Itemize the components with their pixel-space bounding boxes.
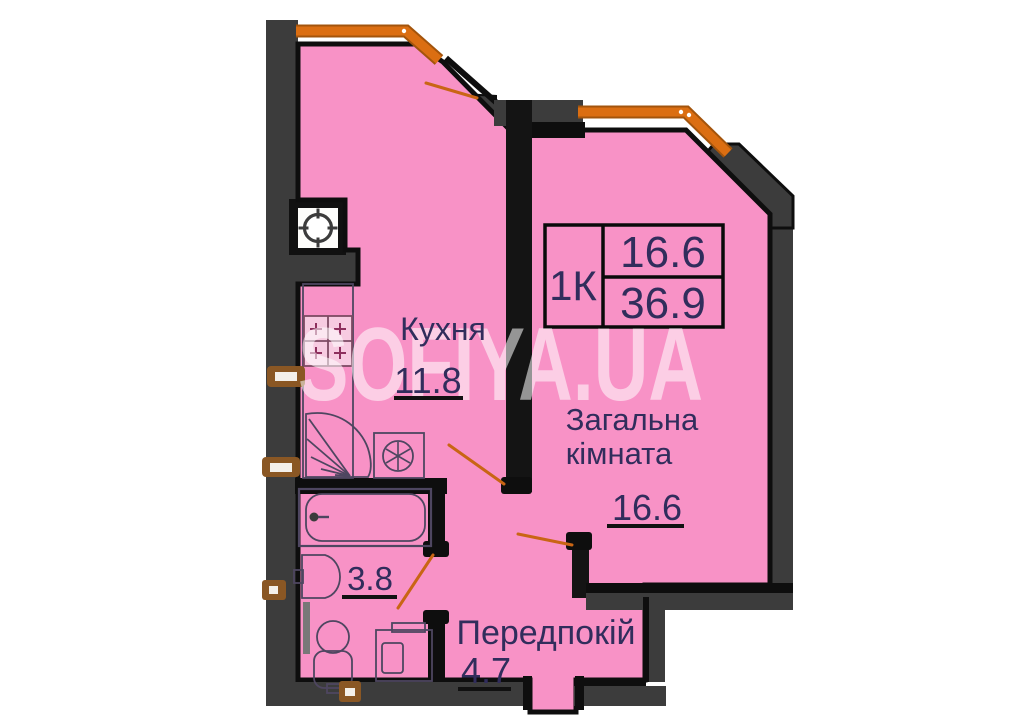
bathroom-area-label: 3.8	[347, 560, 393, 597]
bathroom-door-jamb-upper	[423, 541, 449, 557]
living-name-label-line1: Загальна	[566, 402, 699, 437]
valve-slot	[275, 372, 297, 381]
window-joint-mark	[679, 110, 683, 114]
window-joint-mark	[402, 29, 406, 33]
vent-shaft-icon	[298, 208, 338, 248]
hallway-right-wall-gray	[649, 597, 665, 682]
hallway-name-label: Передпокій	[457, 614, 636, 652]
bottom-wall-right	[574, 686, 666, 706]
legend-living-area: 16.6	[620, 228, 706, 277]
hallway-right-wall-edge	[643, 597, 649, 682]
divider-end-cap	[501, 477, 532, 494]
left-wall	[266, 20, 298, 706]
valve-slot	[269, 586, 278, 594]
kitchen-name-label: Кухня	[400, 311, 486, 347]
living-door-jamb	[566, 532, 592, 550]
kitchen-area-label: 11.8	[394, 360, 461, 401]
bathroom-door-jamb-lower	[423, 610, 449, 624]
window-joint-mark	[687, 113, 691, 117]
drain-slot	[345, 688, 355, 696]
living-area-label: 16.6	[612, 487, 682, 528]
hallway-area-label: 4.7	[461, 650, 511, 691]
bathroom-top-wall	[295, 478, 447, 494]
living-bottom-wall-gray	[586, 593, 793, 610]
radiator-strip	[303, 602, 310, 654]
floorplan-canvas: 1К 16.6 36.9 SOFIYA.UA Кухня 11.8 Загаль…	[0, 0, 1024, 725]
living-name-label-line2: кімната	[566, 436, 673, 471]
valve-slot	[270, 463, 292, 472]
entrance-jamb-right	[575, 676, 584, 710]
floorplan-page: 1К 16.6 36.9 SOFIYA.UA Кухня 11.8 Загаль…	[0, 0, 1024, 725]
living-top-wall-edge	[528, 122, 585, 138]
kitchen-living-divider-wall	[506, 100, 532, 492]
living-bottom-wall-edge	[586, 583, 793, 593]
legend-apartment-type: 1К	[549, 262, 597, 309]
right-wall	[772, 203, 793, 610]
vent-shaft-circle	[305, 215, 332, 242]
entrance-jamb-left	[523, 676, 532, 710]
